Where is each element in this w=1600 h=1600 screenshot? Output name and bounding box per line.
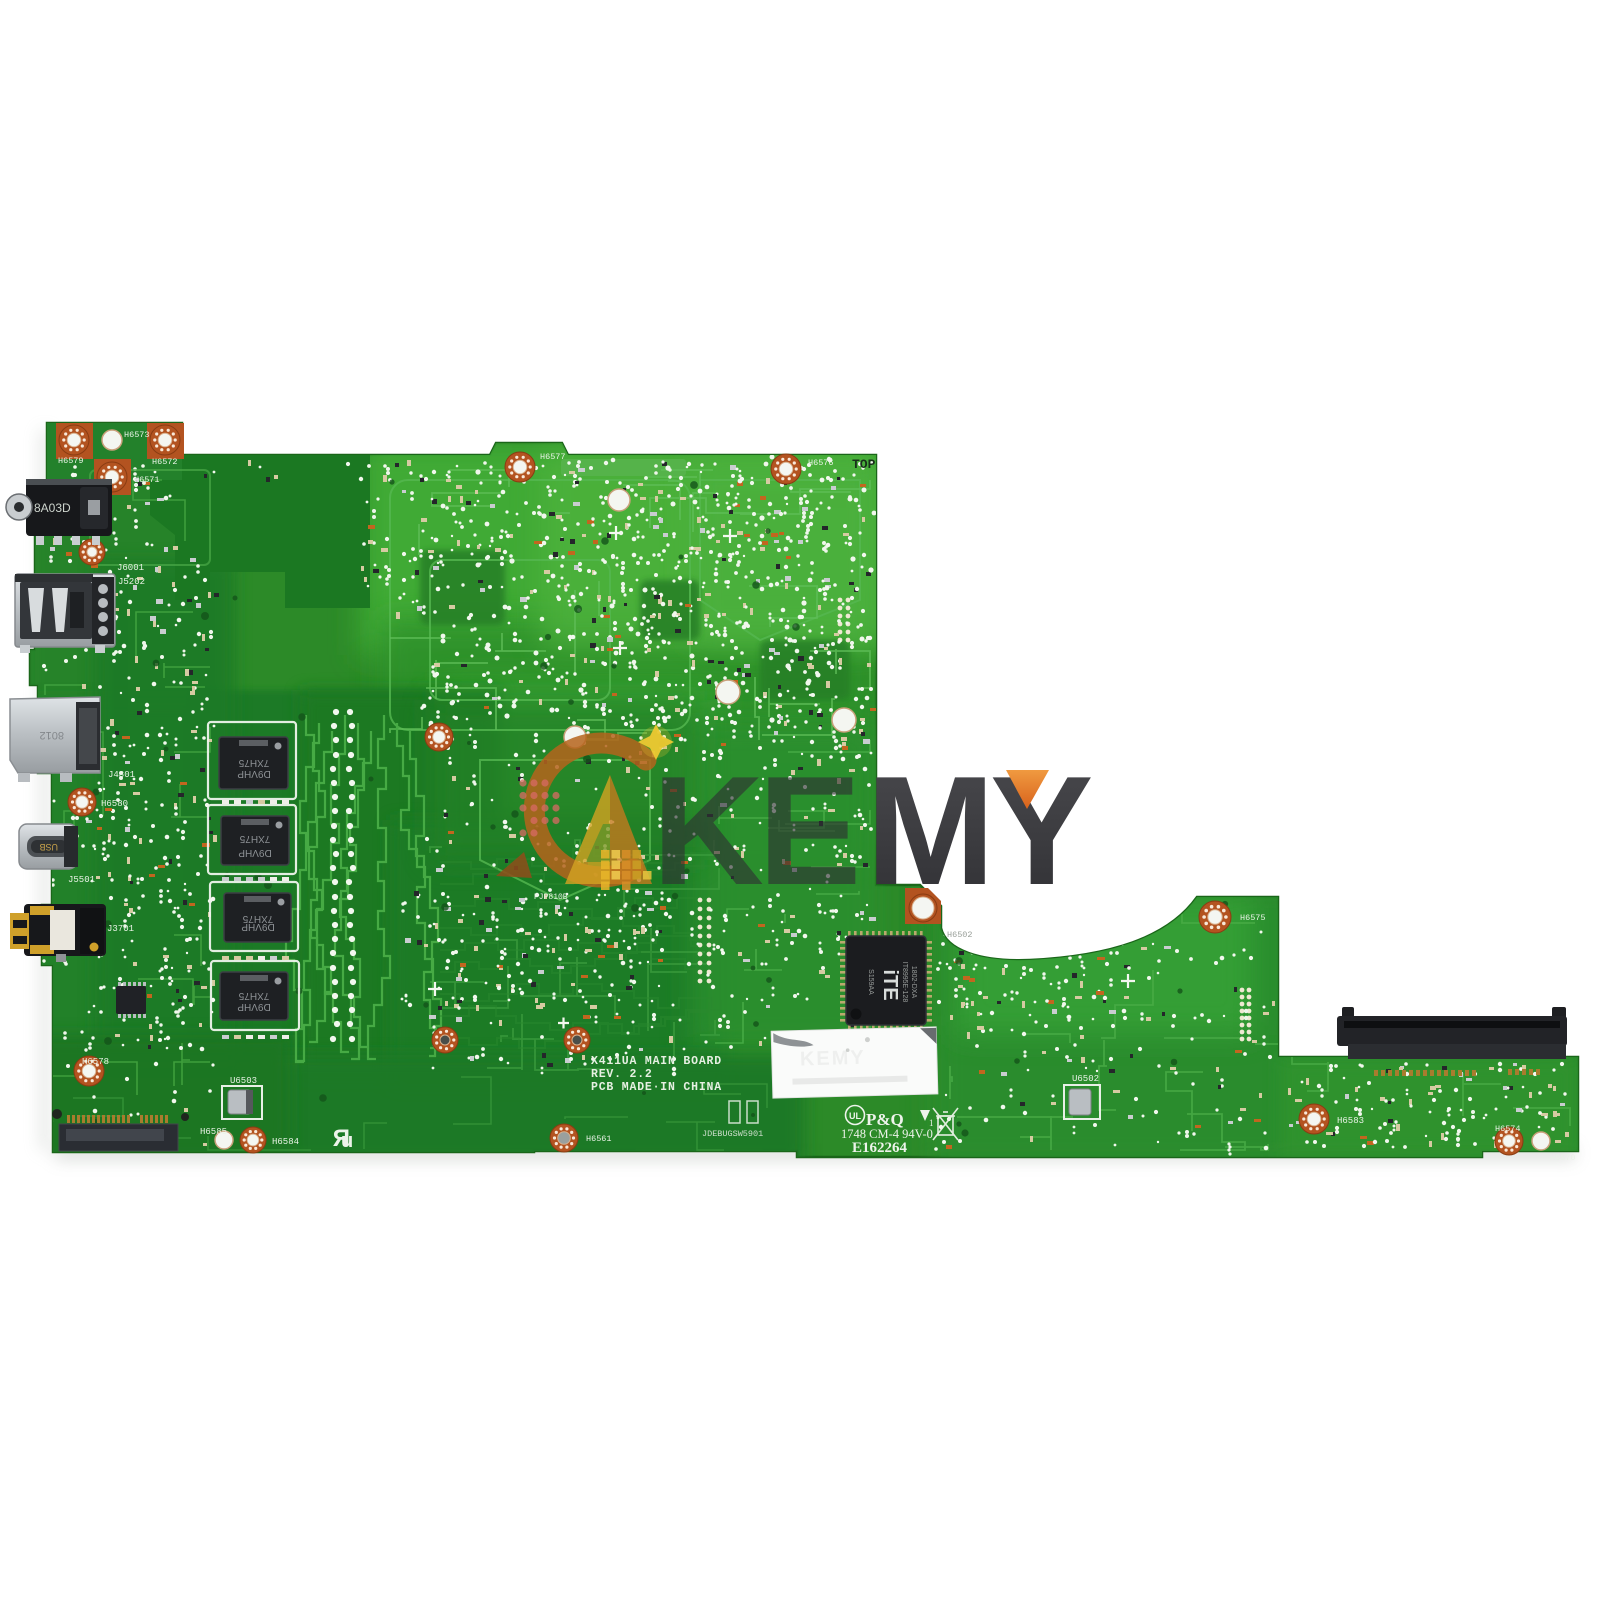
svg-text:H6561: H6561 [586,1134,612,1144]
svg-text:7XH75: 7XH75 [238,757,269,768]
svg-text:7XH75: 7XH75 [239,833,270,844]
svg-text:PCB MADE·IN CHINA: PCB MADE·IN CHINA [591,1081,722,1094]
svg-text:7XH75: 7XH75 [238,990,269,1001]
svg-text:U6503: U6503 [230,1076,257,1086]
svg-text:H6580: H6580 [101,799,128,809]
svg-text:H6572: H6572 [152,457,178,467]
svg-text:8012: 8012 [40,729,64,741]
svg-text:1748 CM-4 94V-0: 1748 CM-4 94V-0 [841,1127,933,1141]
svg-text:H6502: H6502 [947,930,973,940]
svg-text:S159AA: S159AA [867,969,874,995]
svg-text:H6576: H6576 [808,458,834,468]
svg-text:J4801: J4801 [108,770,135,780]
svg-text:H6584: H6584 [272,1137,299,1147]
svg-text:X411UA MAIN BOARD: X411UA MAIN BOARD [591,1055,722,1068]
svg-text:H6571: H6571 [134,475,160,485]
svg-text:IT8995E-128: IT8995E-128 [901,962,908,1003]
svg-text:JDEBUGSW5901: JDEBUGSW5901 [702,1129,763,1139]
svg-text:E: E [758,744,861,917]
svg-text:J5202: J5202 [118,577,145,587]
svg-text:U6502: U6502 [1072,1074,1099,1084]
svg-text:H6573: H6573 [124,430,150,440]
svg-text:REV. 2.2: REV. 2.2 [591,1068,653,1081]
svg-text:E162264: E162264 [852,1140,908,1156]
svg-text:D9VHP: D9VHP [237,768,271,779]
svg-text:H6575: H6575 [1240,913,1266,923]
svg-text:J6001: J6001 [117,563,144,573]
svg-text:KEMY: KEMY [800,1047,866,1071]
svg-text:iTE: iTE [879,969,901,1000]
svg-text:K: K [652,744,764,917]
svg-text:H6578: H6578 [82,1057,109,1067]
svg-text:PJP810B: PJP810B [534,893,568,902]
svg-text:USB: USB [39,842,58,852]
svg-text:H6570: H6570 [1550,1153,1576,1163]
svg-text:H6574: H6574 [1495,1124,1521,1134]
svg-text:M: M [866,744,995,917]
svg-text:H6583: H6583 [1337,1116,1364,1126]
svg-text:D9VHP: D9VHP [238,847,272,858]
svg-text:D9VHP: D9VHP [237,1001,271,1012]
svg-text:J5501: J5501 [68,875,95,885]
svg-text:H6579: H6579 [58,456,84,466]
svg-text:H6577: H6577 [540,452,566,462]
svg-text:TOP: TOP [852,457,876,472]
svg-text:8A03D: 8A03D [34,501,71,515]
svg-text:H6585: H6585 [200,1127,227,1137]
svg-text:UL: UL [849,1111,861,1121]
svg-text:J3701: J3701 [107,924,134,934]
svg-text:Y: Y [990,744,1093,917]
svg-text:D9VHP: D9VHP [241,921,275,932]
svg-text:1802-DXA: 1802-DXA [910,966,917,999]
svg-text:u: u [341,1130,353,1152]
